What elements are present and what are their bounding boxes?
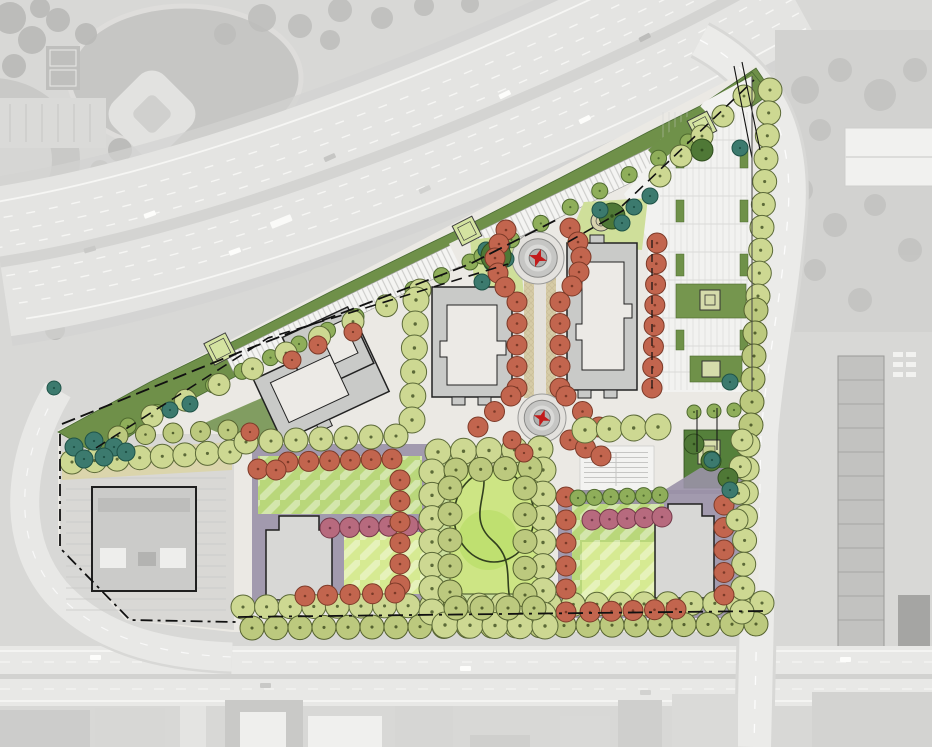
tree-center-dot	[760, 226, 763, 229]
tree-center-dot	[391, 458, 394, 461]
tree-center-dot	[93, 440, 95, 442]
tree-center-dot	[304, 595, 307, 598]
tree-center-dot	[706, 623, 709, 626]
tree-center-dot	[151, 415, 154, 418]
tree-center-dot	[83, 458, 85, 460]
tree-center-dot	[199, 430, 202, 433]
tree-center-dot	[227, 429, 230, 432]
tree-center-dot	[559, 365, 562, 368]
tree-center-dot	[753, 331, 756, 334]
tree-center-dot	[448, 590, 451, 593]
tree-center-dot	[701, 135, 704, 138]
tree-center-dot	[510, 395, 513, 398]
tree-center-dot	[448, 538, 451, 541]
tree-center-dot	[407, 604, 410, 607]
tree-center-dot	[511, 439, 513, 441]
tree-center-dot	[436, 450, 439, 453]
tree-center-dot	[654, 283, 657, 286]
tree-center-dot	[569, 206, 571, 208]
tree-center-dot	[169, 409, 171, 411]
tree-center-dot	[497, 272, 500, 275]
tree-center-dot	[189, 403, 191, 405]
tree-center-dot	[758, 272, 761, 275]
tree-center-dot	[633, 206, 635, 208]
tree-center-dot	[116, 458, 119, 461]
tree-center-dot	[608, 518, 611, 521]
tree-center-dot	[680, 155, 683, 158]
tree-center-dot	[430, 587, 433, 590]
tree-center-dot	[144, 433, 147, 436]
tree-center-dot	[767, 111, 770, 114]
tree-center-dot	[516, 301, 519, 304]
tree-center-dot	[477, 426, 480, 429]
tree-center-dot	[125, 451, 127, 453]
tree-center-dot	[493, 624, 496, 627]
tree-center-dot	[413, 346, 416, 349]
tree-center-dot	[430, 540, 433, 543]
tree-center-dot	[448, 486, 451, 489]
tree-center-dot	[493, 410, 496, 413]
tree-center-dot	[768, 88, 771, 91]
tree-center-dot	[443, 623, 446, 626]
tree-center-dot	[336, 605, 339, 608]
tree-center-dot	[727, 477, 730, 480]
tree-center-dot	[743, 95, 746, 98]
tree-center-dot	[649, 195, 651, 197]
tree-center-dot	[399, 563, 402, 566]
tree-center-dot	[523, 567, 526, 570]
tree-center-dot	[608, 427, 611, 430]
tree-center-dot	[569, 227, 572, 230]
tree-center-dot	[659, 494, 661, 496]
tree-center-dot	[516, 365, 519, 368]
tree-center-dot	[411, 394, 414, 397]
tree-center-dot	[766, 134, 769, 137]
tree-center-dot	[742, 563, 745, 566]
tree-center-dot	[541, 517, 544, 520]
pedestrian-street	[524, 270, 556, 398]
tree-center-dot	[713, 410, 715, 412]
tree-center-dot	[701, 149, 704, 152]
tree-center-dot	[541, 589, 544, 592]
tree-center-dot	[541, 541, 544, 544]
tree-center-dot	[410, 418, 413, 421]
tree-center-dot	[322, 626, 325, 629]
tree-center-dot	[418, 625, 421, 628]
site-plan-rendering	[0, 0, 932, 747]
tree-center-dot	[317, 344, 319, 346]
tree-center-dot	[399, 521, 402, 524]
tennis-courts	[46, 46, 80, 90]
tree-center-dot	[711, 459, 713, 461]
tree-center-dot	[53, 387, 55, 389]
tree-center-dot	[370, 625, 373, 628]
tree-center-dot	[172, 432, 175, 435]
tree-center-dot	[610, 496, 612, 498]
tree-center-dot	[430, 610, 433, 613]
tree-center-dot	[265, 605, 268, 608]
tree-center-dot	[103, 456, 105, 458]
tree-center-dot	[430, 494, 433, 497]
tree-center-dot	[565, 588, 568, 591]
tree-center-dot	[414, 298, 417, 301]
tree-center-dot	[723, 571, 726, 574]
tree-center-dot	[632, 609, 635, 612]
tree-center-dot	[571, 285, 574, 288]
tree-center-dot	[675, 608, 678, 611]
tree-center-dot	[541, 492, 544, 495]
parking-plaza-island	[676, 284, 746, 318]
tree-center-dot	[752, 354, 755, 357]
tree-center-dot	[385, 304, 388, 307]
tree-center-dot	[113, 446, 115, 448]
tree-center-dot	[569, 439, 572, 442]
tree-center-dot	[657, 157, 659, 159]
tree-center-dot	[448, 512, 451, 515]
tree-center-dot	[723, 526, 726, 529]
tree-center-dot	[763, 180, 766, 183]
tree-center-dot	[541, 565, 544, 568]
tree-center-dot	[346, 626, 349, 629]
tree-center-dot	[626, 517, 629, 520]
tree-center-dot	[543, 624, 546, 627]
tree-center-dot	[760, 601, 763, 604]
tree-center-dot	[523, 593, 526, 596]
tree-center-dot	[479, 468, 482, 471]
tree-center-dot	[655, 262, 658, 265]
tree-center-dot	[269, 357, 271, 359]
tree-center-dot	[251, 367, 254, 370]
tree-center-dot	[523, 513, 526, 516]
tree-center-dot	[430, 470, 433, 473]
tree-center-dot	[298, 626, 301, 629]
tree-center-dot	[565, 496, 568, 499]
tree-center-dot	[565, 519, 568, 522]
tree-center-dot	[730, 623, 733, 626]
tree-center-dot	[739, 465, 742, 468]
tree-center-dot	[70, 460, 73, 463]
tree-center-dot	[584, 447, 587, 450]
tree-center-dot	[399, 479, 402, 482]
tree-center-dot	[480, 606, 483, 609]
tree-center-dot	[368, 526, 371, 529]
tree-center-dot	[370, 458, 373, 461]
tree-center-dot	[632, 426, 635, 429]
tree-center-dot	[348, 526, 351, 529]
tree-center-dot	[275, 469, 278, 472]
tree-center-dot	[559, 301, 562, 304]
tree-center-dot	[754, 308, 757, 311]
tree-center-dot	[532, 606, 535, 609]
tree-center-dot	[487, 449, 490, 452]
tree-center-dot	[308, 460, 311, 463]
tree-center-dot	[577, 497, 579, 499]
tree-center-dot	[565, 565, 568, 568]
tree-center-dot	[682, 623, 685, 626]
tree-center-dot	[206, 452, 209, 455]
tree-center-dot	[741, 439, 744, 442]
tree-center-dot	[559, 344, 562, 347]
tree-center-dot	[328, 460, 331, 463]
boulevard-median	[0, 674, 932, 679]
tree-center-dot	[565, 611, 568, 614]
tree-center-dot	[468, 624, 471, 627]
tree-center-dot	[693, 443, 696, 446]
tree-center-dot	[643, 495, 645, 497]
tree-center-dot	[583, 428, 586, 431]
tree-center-dot	[289, 605, 292, 608]
tree-center-dot	[656, 242, 659, 245]
tree-center-dot	[498, 243, 501, 246]
tree-center-dot	[269, 439, 272, 442]
tree-center-dot	[462, 450, 465, 453]
tree-center-dot	[540, 222, 542, 224]
tree-center-dot	[610, 624, 613, 627]
tree-center-dot	[504, 467, 507, 470]
tree-center-dot	[743, 539, 746, 542]
tree-center-dot	[653, 608, 656, 611]
tree-center-dot	[736, 519, 739, 522]
tree-center-dot	[658, 623, 661, 626]
tree-center-dot	[329, 527, 332, 530]
tree-center-dot	[414, 322, 417, 325]
tree-center-dot	[250, 626, 253, 629]
tree-center-dot	[610, 214, 613, 217]
tree-center-dot	[399, 500, 402, 503]
tree-center-dot	[344, 436, 347, 439]
tree-center-dot	[312, 605, 315, 608]
tree-center-dot	[723, 504, 726, 507]
tree-center-dot	[756, 294, 759, 297]
tree-center-dot	[352, 331, 354, 333]
tree-center-dot	[448, 564, 451, 567]
tree-center-dot	[454, 468, 457, 471]
tree-center-dot	[749, 423, 752, 426]
tree-center-dot	[454, 606, 457, 609]
tree-center-dot	[661, 516, 664, 519]
tree-center-dot	[750, 400, 753, 403]
tree-center-dot	[287, 461, 290, 464]
tree-center-dot	[713, 602, 716, 605]
tree-center-dot	[643, 516, 646, 519]
tree-center-dot	[73, 446, 75, 448]
tree-center-dot	[241, 605, 244, 608]
tree-center-dot	[518, 624, 521, 627]
tree-center-dot	[559, 322, 562, 325]
tree-center-dot	[741, 587, 744, 590]
site-plan-map	[0, 0, 932, 747]
tree-center-dot	[565, 542, 568, 545]
tree-center-dot	[388, 525, 391, 528]
tree-center-dot	[586, 624, 589, 627]
tree-center-dot	[733, 409, 735, 411]
tree-center-dot	[359, 605, 362, 608]
tree-center-dot	[729, 489, 731, 491]
tree-center-dot	[653, 325, 656, 328]
tree-center-dot	[523, 486, 526, 489]
tree-center-dot	[764, 157, 767, 160]
tree-center-dot	[294, 438, 297, 441]
tree-center-dot	[516, 344, 519, 347]
tree-center-dot	[577, 241, 580, 244]
tree-center-dot	[228, 450, 231, 453]
tree-center-dot	[516, 322, 519, 325]
tree-center-dot	[693, 411, 695, 413]
tree-center-dot	[412, 370, 415, 373]
tree-center-dot	[218, 383, 221, 386]
tree-center-dot	[394, 592, 397, 595]
tree-center-dot	[565, 395, 568, 398]
tree-center-dot	[538, 447, 541, 450]
tree-center-dot	[523, 540, 526, 543]
tree-center-dot	[319, 437, 322, 440]
pedestrian-walk	[534, 270, 546, 398]
tree-center-dot	[656, 425, 659, 428]
tree-center-dot	[626, 495, 628, 497]
courtyard-se	[582, 542, 658, 600]
tree-center-dot	[505, 229, 508, 232]
tree-center-dot	[469, 261, 471, 263]
tree-center-dot	[722, 115, 725, 118]
tree-center-dot	[654, 304, 657, 307]
tree-center-dot	[291, 359, 293, 361]
tree-center-dot	[506, 606, 509, 609]
tree-center-dot	[723, 594, 726, 597]
tree-center-dot	[754, 622, 757, 625]
tree-center-dot	[494, 257, 497, 260]
tree-center-dot	[591, 519, 594, 522]
tree-center-dot	[161, 455, 164, 458]
tree-center-dot	[399, 542, 402, 545]
tree-center-dot	[369, 435, 372, 438]
tree-center-dot	[621, 222, 623, 224]
tree-center-dot	[739, 147, 741, 149]
tree-center-dot	[659, 175, 662, 178]
tree-center-dot	[729, 381, 731, 383]
tree-center-dot	[326, 594, 329, 597]
tree-center-dot	[580, 256, 583, 259]
office-building-a	[432, 287, 512, 405]
tree-center-dot	[383, 604, 386, 607]
tree-center-dot	[349, 459, 352, 462]
tree-center-dot	[562, 624, 565, 627]
tree-center-dot	[581, 410, 584, 413]
tree-center-dot	[599, 190, 601, 192]
tree-center-dot	[634, 623, 637, 626]
tree-center-dot	[298, 343, 300, 345]
tree-center-dot	[523, 452, 525, 454]
tree-center-dot	[504, 286, 507, 289]
tree-center-dot	[371, 592, 374, 595]
tree-center-dot	[349, 593, 352, 596]
tree-center-dot	[430, 517, 433, 520]
tree-center-dot	[528, 466, 531, 469]
tree-center-dot	[183, 453, 186, 456]
tree-center-dot	[138, 456, 141, 459]
tree-center-dot	[690, 602, 693, 605]
tree-center-dot	[600, 455, 603, 458]
tree-center-dot	[249, 431, 251, 433]
tree-center-dot	[481, 281, 483, 283]
tree-center-dot	[430, 564, 433, 567]
tree-center-dot	[274, 626, 277, 629]
tree-center-dot	[578, 271, 581, 274]
tree-center-dot	[762, 203, 765, 206]
tree-center-dot	[723, 549, 726, 552]
tree-center-dot	[599, 209, 601, 211]
tree-center-dot	[759, 249, 762, 252]
tree-center-dot	[257, 468, 260, 471]
tree-center-dot	[628, 173, 630, 175]
tree-center-dot	[394, 625, 397, 628]
tree-center-dot	[593, 496, 595, 498]
tree-center-dot	[394, 434, 397, 437]
